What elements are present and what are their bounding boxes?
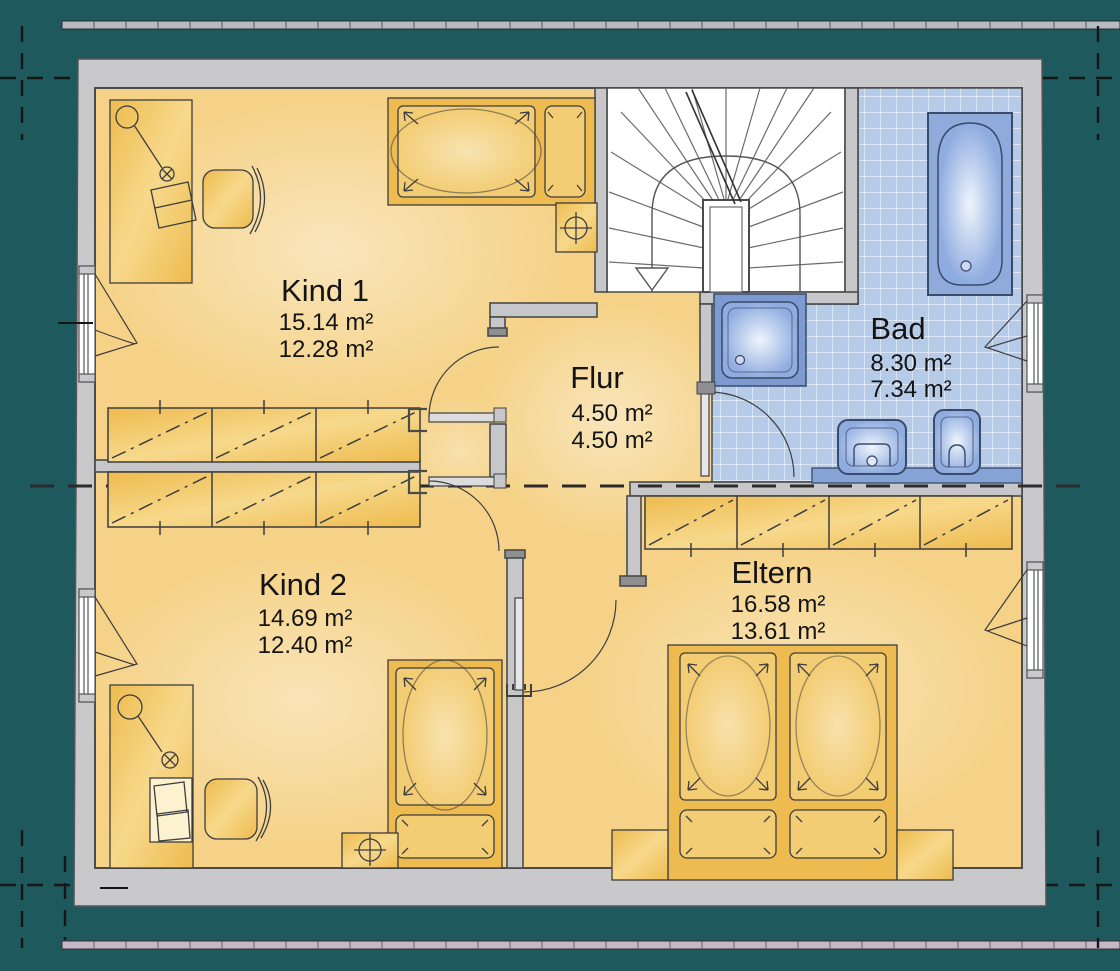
desk-kind1 — [110, 100, 196, 283]
wardrobe-kind2 — [108, 472, 420, 535]
bad-area-net: 7.34 m² — [870, 376, 951, 403]
bad-area-gross: 8.30 m² — [870, 350, 951, 377]
kind2-area-gross: 14.69 m² — [258, 605, 353, 632]
bed-kind2 — [388, 660, 502, 868]
desk-kind2 — [110, 685, 193, 868]
eltern-title: Eltern — [732, 555, 813, 590]
flur-title: Flur — [570, 360, 623, 395]
flur-area-gross: 4.50 m² — [571, 400, 652, 427]
bathtub — [928, 113, 1012, 295]
floor-plan-canvas: Kind 1 15.14 m² 12.28 m² Flur 4.50 m² 4.… — [0, 0, 1120, 971]
shower — [714, 294, 806, 386]
nightstand-kind2 — [342, 833, 398, 868]
nightstand-kind1 — [556, 203, 597, 252]
room-label-kind2: Kind 2 14.69 m² 12.40 m² — [258, 567, 353, 659]
kind1-area-net: 12.28 m² — [279, 336, 374, 363]
top-ruler — [62, 21, 1120, 29]
kind1-area-gross: 15.14 m² — [279, 309, 374, 336]
nightstand-right — [897, 830, 953, 880]
bathtub-drain-icon — [961, 261, 971, 271]
wardrobe-kind1 — [108, 400, 420, 462]
kind1-title: Kind 1 — [281, 273, 369, 308]
pillow — [790, 810, 886, 858]
flur-area-net: 4.50 m² — [571, 427, 652, 454]
pillow — [680, 810, 776, 858]
bad-title: Bad — [870, 311, 925, 346]
eltern-area-net: 13.61 m² — [731, 618, 826, 645]
nightstand-left — [612, 830, 668, 880]
bed-kind1 — [388, 98, 595, 205]
toilet — [934, 410, 980, 474]
washbasin — [838, 420, 906, 474]
wardrobe-eltern — [645, 496, 1012, 557]
pillow — [545, 106, 585, 197]
eltern-area-gross: 16.58 m² — [731, 591, 826, 618]
faucet-icon — [867, 456, 877, 466]
shower-drain-icon — [736, 356, 745, 365]
double-bed — [668, 645, 897, 880]
kind2-area-net: 12.40 m² — [258, 632, 353, 659]
kind2-title: Kind 2 — [259, 567, 347, 602]
room-label-eltern: Eltern 16.58 m² 13.61 m² — [731, 555, 826, 645]
pillow — [396, 815, 494, 858]
bottom-ruler — [62, 941, 1120, 949]
room-label-kind1: Kind 1 15.14 m² 12.28 m² — [279, 273, 374, 363]
